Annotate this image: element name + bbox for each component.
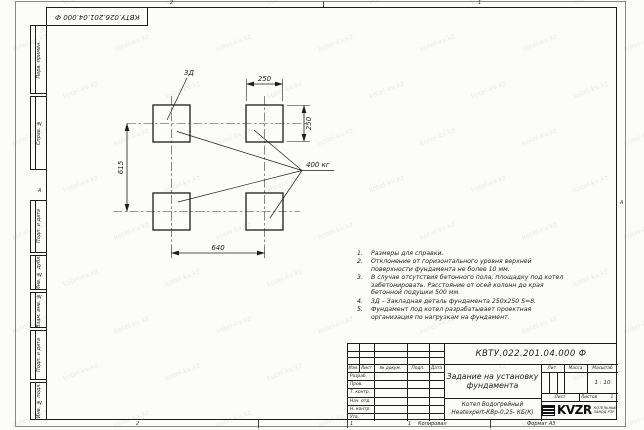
note-item-1: 1. Размеры для справки. (357, 250, 575, 257)
label-zd: 3Д (184, 69, 194, 77)
tb-title-line1: Задание на установку (447, 372, 539, 381)
note-item-3: 3. В случае отсутствия бетонного пола, п… (357, 274, 575, 296)
tb-product-line1: Котел Водогрейный (462, 402, 523, 409)
tb-title: Задание на установку фундамента (444, 364, 541, 398)
extension-lines (172, 79, 311, 258)
kvzr-logo-subtext: КОТЕЛЬНЫЙ ЗАВОД РЗР (594, 406, 617, 415)
bottom-sheet-number: 1 (408, 421, 411, 427)
leader-zd (167, 78, 187, 120)
tb-row-utv: Утв. (348, 413, 374, 421)
note-text: Отклонение от горизонтального уровня вер… (371, 258, 575, 273)
tb-doc-number: КВТУ.022.201.04.000 Ф (444, 344, 618, 364)
tb-product-line2: Heatexpert-КВр-0,25- КБ(К) (451, 410, 533, 417)
zone-tick-bottom (258, 420, 259, 428)
note-number: 4. (357, 298, 371, 305)
note-number: 3. (357, 274, 371, 296)
tb-scale-value: 1 : 10 (587, 372, 618, 393)
dim-text-250-right: 250 (305, 116, 313, 130)
tb-logo-cell: KVZR КОТЕЛЬНЫЙ ЗАВОД РЗР (541, 401, 618, 419)
tb-row-tkontr: Т. контр. (348, 388, 374, 397)
bottom-tick (490, 420, 491, 428)
tb-line (348, 357, 444, 358)
note-number: 2. (357, 258, 371, 273)
tb-mass-label: Масса (564, 364, 587, 372)
tb-row-razrab: Разраб. (348, 372, 374, 380)
dim-text-640-bottom: 640 (211, 244, 225, 252)
note-number: 5. (357, 306, 371, 321)
tb-sheets-value: 1 (606, 393, 618, 401)
leader-lines (167, 78, 334, 218)
zone-bottom-left: 2 (136, 421, 139, 427)
tb-line (429, 344, 430, 421)
note-text: 3Д – Закладная деталь фундамента 250x250… (371, 298, 575, 305)
note-item-5: 5. Фундамент под котел разрабатывает про… (357, 306, 575, 321)
copied-by-label: Копировал (418, 421, 447, 427)
label-load: 400 кг (306, 161, 330, 169)
zone-bottom-right: 1 (350, 421, 353, 427)
note-text: Размеры для справки. (371, 250, 575, 257)
kvzr-logo-text: KVZR (557, 403, 592, 417)
tb-line (348, 351, 444, 352)
tb-title-line2: фундамента (467, 381, 519, 390)
note-text: В случае отсутствия бетонного пола, площ… (371, 274, 575, 296)
tb-sheets-label: Листов (579, 393, 606, 401)
kvzr-logo-icon (542, 405, 555, 416)
tb-lit-label: Лит. (541, 364, 564, 372)
tb-row-prov: Пров. (348, 380, 374, 388)
tb-product: Котел Водогрейный Heatexpert-КВр-0,25- К… (444, 398, 541, 421)
tb-scale-label: Масштаб (587, 364, 618, 372)
format-label: Формат А3 (527, 421, 555, 427)
tb-sheet-label: Лист (541, 393, 579, 401)
tb-col-izm: Изм. (348, 364, 359, 372)
tb-col-list: Лист (359, 364, 374, 372)
note-number: 1. (357, 250, 371, 257)
tb-line (407, 344, 408, 421)
kvzr-logo-sub2: ЗАВОД РЗР (594, 410, 617, 414)
title-block: Изм. Лист № докум. Подп. Дата Разраб. Пр… (347, 343, 617, 420)
tb-row-nachotd: Нач. отд. (348, 397, 374, 405)
tb-line (374, 344, 375, 421)
bottom-tick (347, 420, 348, 428)
leader-load-tr (254, 130, 302, 171)
notes-block: 1. Размеры для справки. 2. Отклонение от… (357, 250, 575, 322)
drawing-sheet: 2 1 КВТУ.026.201.04.000 Ф Перв. примен. … (0, 0, 644, 430)
note-item-4: 4. 3Д – Закладная деталь фундамента 250x… (357, 298, 575, 305)
note-item-2: 2. Отклонение от горизонтального уровня … (357, 258, 575, 273)
tb-row-nkontr: Н. контр. (348, 405, 374, 413)
centerlines (113, 96, 307, 247)
tb-col-data: Дата (429, 364, 444, 372)
note-text: Фундамент под котел разрабатывает проект… (371, 306, 575, 321)
tb-line (549, 372, 550, 393)
dim-text-250-top: 250 (258, 75, 272, 83)
tb-line (557, 372, 558, 393)
tb-col-podp: Подп. (407, 364, 429, 372)
tb-col-docum: № докум. (374, 364, 407, 372)
dim-text-615-left: 615 (117, 160, 125, 174)
